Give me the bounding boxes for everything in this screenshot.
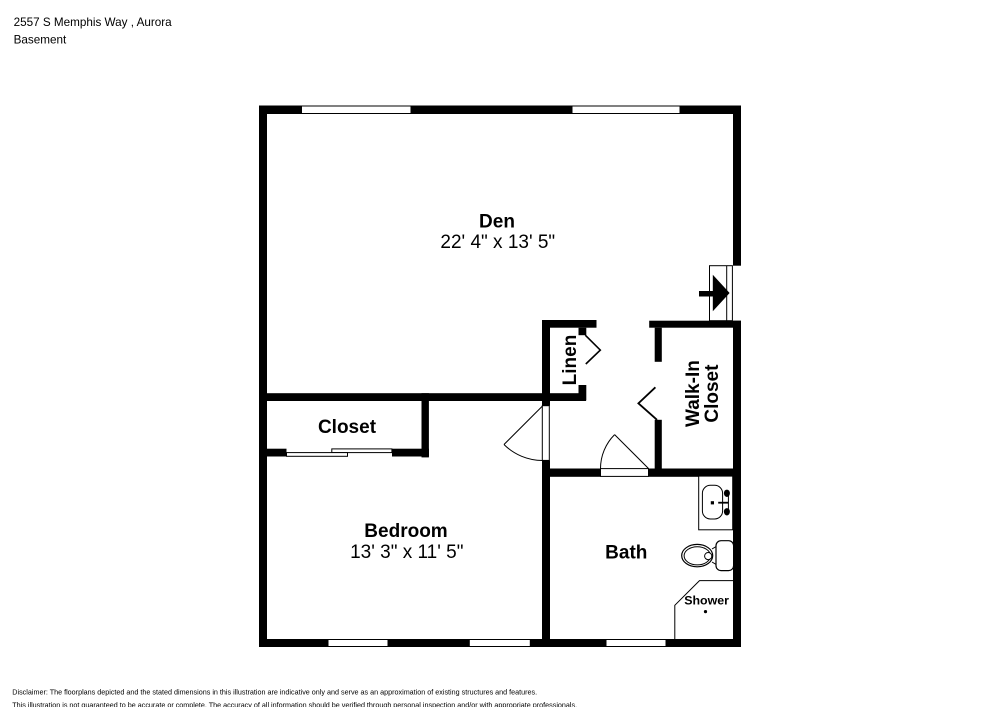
svg-text:Den: Den [479,212,515,233]
svg-text:Closet: Closet [318,417,377,438]
svg-text:13' 3" x 11' 5": 13' 3" x 11' 5" [350,542,463,563]
svg-text:22' 4" x 13' 5": 22' 4" x 13' 5" [440,232,555,253]
svg-text:Linen: Linen [560,335,581,386]
svg-text:Disclaimer: The floorplans dep: Disclaimer: The floorplans depicted and … [12,688,537,697]
svg-text:2557 S Memphis Way , Aurora: 2557 S Memphis Way , Aurora [14,16,173,29]
svg-text:Closet: Closet [702,364,723,423]
svg-text:Shower: Shower [684,594,729,608]
svg-text:Bath: Bath [605,542,647,563]
svg-text:Walk-In: Walk-In [683,360,704,427]
svg-text:Basement: Basement [14,34,67,47]
svg-text:Bedroom: Bedroom [364,521,447,542]
svg-text:This illustration is not guara: This illustration is not guaranteed to b… [12,701,577,707]
